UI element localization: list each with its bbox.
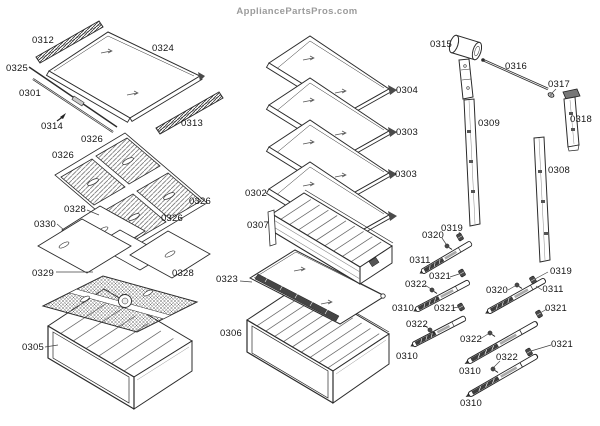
part-label-0303: 0303 xyxy=(395,169,417,180)
part-label-0319: 0319 xyxy=(550,266,572,277)
part-label-0311: 0311 xyxy=(409,255,430,266)
part-label-0310: 0310 xyxy=(392,303,414,314)
part-label-0311: 0311 xyxy=(542,284,563,295)
part-label-0301: 0301 xyxy=(19,88,41,99)
part-label-0328: 0328 xyxy=(64,204,86,215)
roller-assembly-0315 xyxy=(448,34,484,105)
exploded-parts-diagram: AppliancePartsPros.com xyxy=(0,0,600,426)
part-label-0304: 0304 xyxy=(396,85,418,96)
part-label-0322: 0322 xyxy=(496,352,518,363)
part-label-0322: 0322 xyxy=(406,319,428,330)
part-label-0320: 0320 xyxy=(422,230,444,241)
part-label-0322: 0322 xyxy=(405,279,427,290)
part-label-0312: 0312 xyxy=(32,35,54,46)
part-label-0310: 0310 xyxy=(460,398,482,409)
part-label-0328: 0328 xyxy=(172,268,194,279)
part-label-0326: 0326 xyxy=(189,196,211,207)
part-label-0326: 0326 xyxy=(161,213,183,224)
part-label-0302: 0302 xyxy=(245,188,267,199)
part-label-0313: 0313 xyxy=(181,118,203,129)
rail-0308 xyxy=(534,137,550,262)
part-label-0316: 0316 xyxy=(505,61,527,72)
part-label-0306: 0306 xyxy=(220,328,242,339)
part-label-0319: 0319 xyxy=(441,223,463,234)
part-label-0318: 0318 xyxy=(570,114,592,125)
slide-0311-right xyxy=(484,277,547,316)
part-label-0317: 0317 xyxy=(548,79,570,90)
part-label-0330: 0330 xyxy=(34,219,56,230)
part-label-0321: 0321 xyxy=(434,303,456,314)
part-label-0314: 0314 xyxy=(41,121,63,132)
part-label-0326: 0326 xyxy=(52,150,74,161)
part-label-0324: 0324 xyxy=(152,43,174,54)
part-label-0326: 0326 xyxy=(81,134,103,145)
part-label-0303: 0303 xyxy=(396,127,418,138)
parts-diagram-page: AppliancePartsPros.com xyxy=(0,0,600,426)
part-label-0329: 0329 xyxy=(32,268,54,279)
part-label-0310: 0310 xyxy=(396,351,418,362)
part-label-0321: 0321 xyxy=(551,339,573,350)
part-label-0309: 0309 xyxy=(478,118,500,129)
part-label-0307: 0307 xyxy=(247,220,269,231)
part-label-0315: 0315 xyxy=(430,39,452,50)
part-label-0322: 0322 xyxy=(460,334,482,345)
part-label-0320: 0320 xyxy=(486,285,508,296)
part-label-0321: 0321 xyxy=(545,303,567,314)
part-label-0308: 0308 xyxy=(548,165,570,176)
part-label-0305: 0305 xyxy=(22,342,44,353)
part-label-0325: 0325 xyxy=(6,63,28,74)
part-label-0323: 0323 xyxy=(216,274,238,285)
watermark: AppliancePartsPros.com xyxy=(236,6,357,17)
screw-0314 xyxy=(57,113,66,121)
ring-0317 xyxy=(547,92,554,98)
part-label-0310: 0310 xyxy=(459,366,481,377)
part-label-0321: 0321 xyxy=(429,271,451,282)
